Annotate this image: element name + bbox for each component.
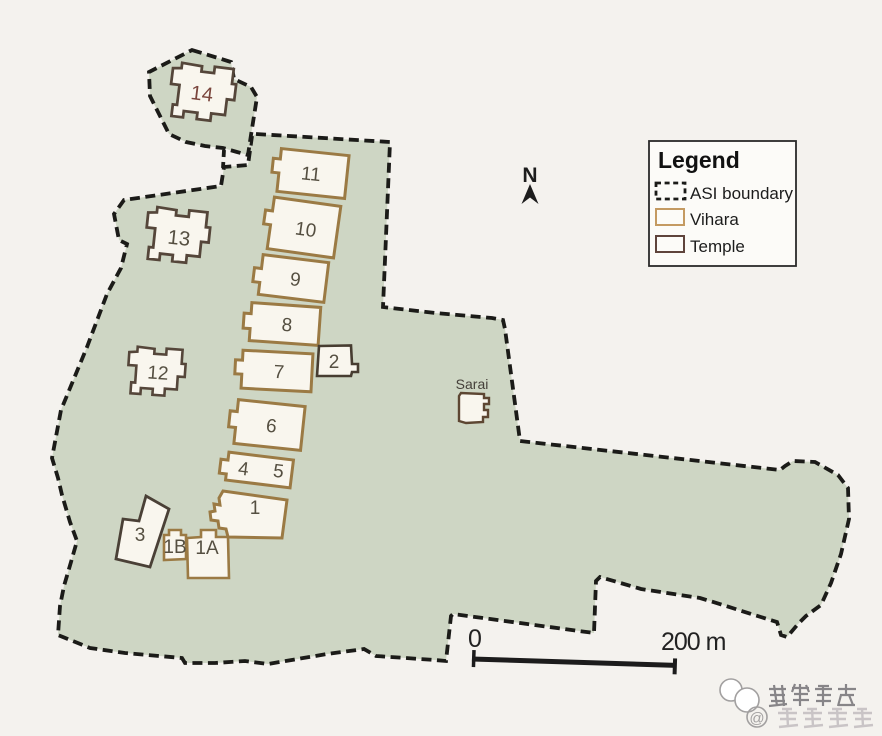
svg-text:ASI boundary: ASI boundary <box>690 184 794 203</box>
svg-text:12: 12 <box>147 362 170 384</box>
svg-text:Legend: Legend <box>658 147 740 173</box>
svg-text:7: 7 <box>273 362 285 384</box>
svg-text:3: 3 <box>135 525 146 546</box>
svg-text:14: 14 <box>189 82 214 107</box>
svg-text:Temple: Temple <box>690 237 745 256</box>
svg-text:8: 8 <box>281 315 293 337</box>
svg-text:200 m: 200 m <box>661 628 726 656</box>
svg-text:10: 10 <box>294 218 318 242</box>
svg-text:1B: 1B <box>163 537 186 558</box>
svg-text:2: 2 <box>329 352 340 373</box>
svg-text:@: @ <box>749 710 764 727</box>
svg-text:6: 6 <box>265 416 278 438</box>
svg-text:0: 0 <box>468 625 482 653</box>
svg-text:1A: 1A <box>195 538 219 559</box>
svg-text:11: 11 <box>300 163 322 186</box>
svg-text:Vihara: Vihara <box>690 210 739 229</box>
svg-text:Sarai: Sarai <box>456 376 489 392</box>
svg-text:N: N <box>522 164 537 187</box>
svg-text:13: 13 <box>166 227 191 251</box>
svg-text:1: 1 <box>250 498 261 519</box>
